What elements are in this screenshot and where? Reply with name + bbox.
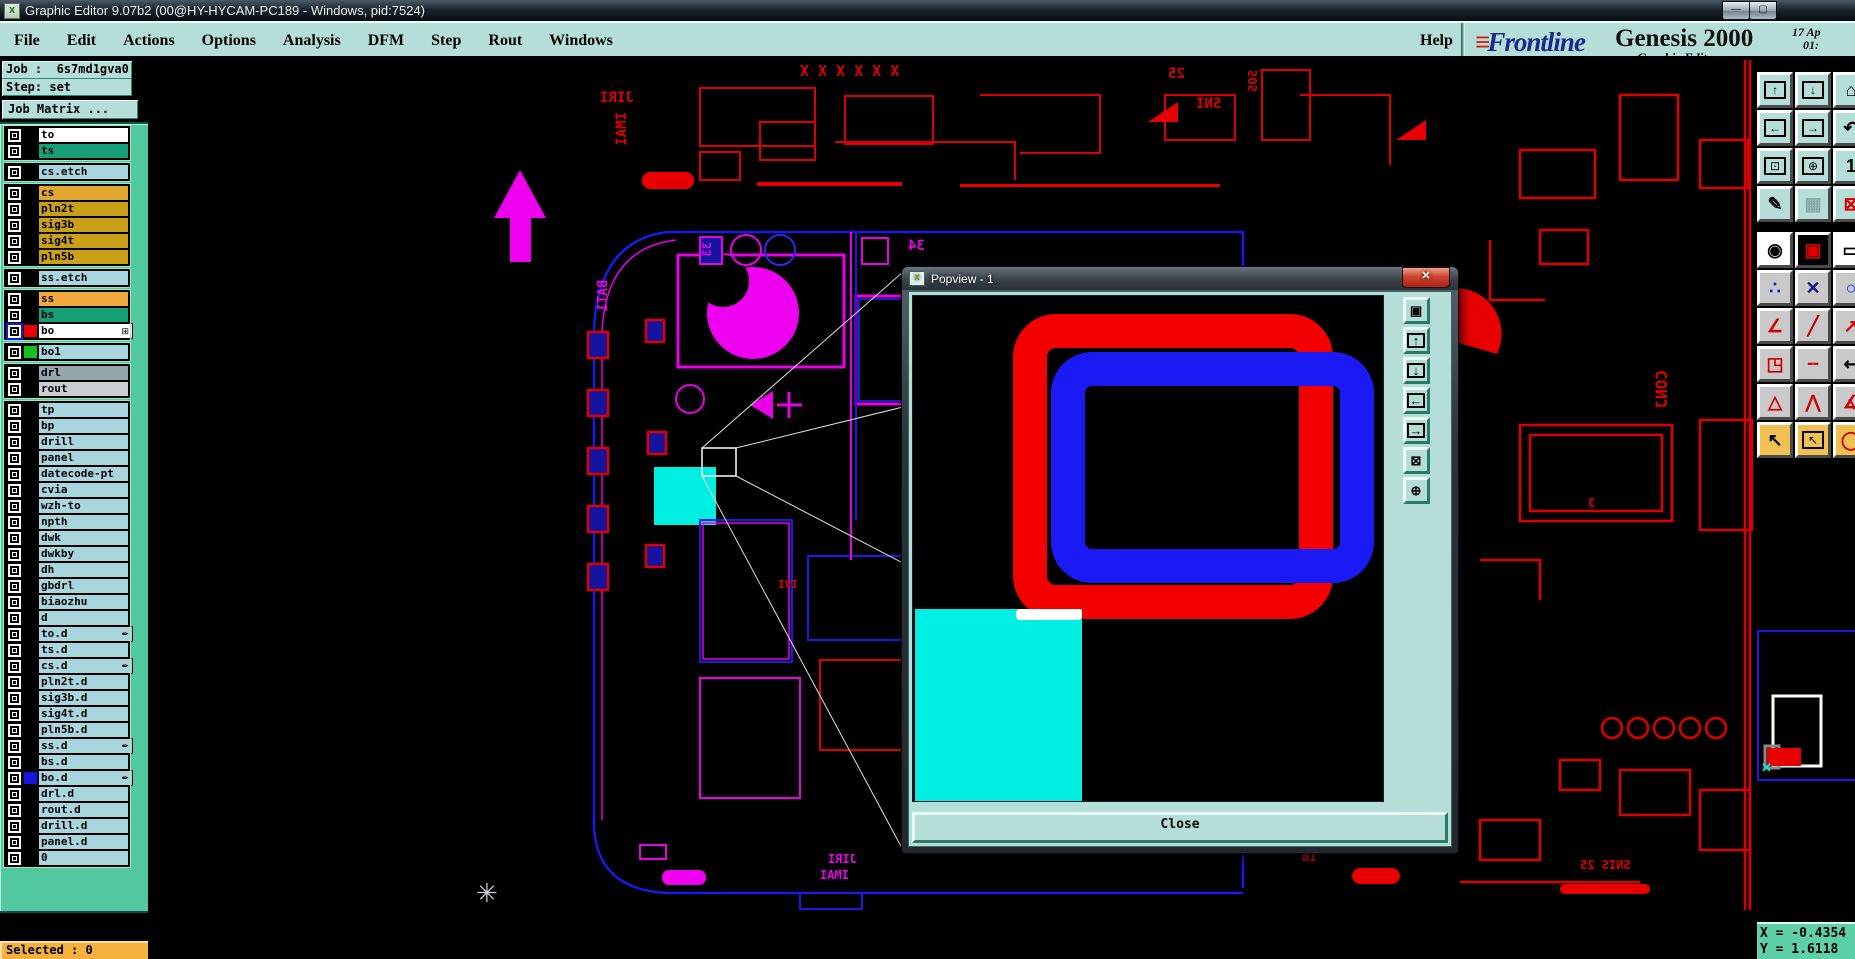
maximize-button[interactable]: ▢ [1749,1,1777,20]
undo-view-button[interactable]: ↶ [1833,110,1855,146]
layer-checkbox[interactable] [8,187,21,200]
triangle-marker-icon: △ [1768,393,1782,411]
popview-zoom-fit-button[interactable]: ⊠ [1403,447,1430,474]
silkscreen-text: BAT1 [596,280,611,311]
layer-label: ss [38,291,129,307]
layer-label: rout.d [38,802,129,818]
layer-checkbox[interactable] [8,309,21,322]
layer-label: panel.d [38,834,129,850]
layer-row-datecode-pt[interactable]: datecode-pt [5,466,129,482]
navigator-panel[interactable]: ✕ [1757,630,1855,781]
selected-status: Selected : 0 [0,941,164,959]
pan-up-button[interactable]: ↑ [1757,72,1793,108]
layer-label: cs [38,185,129,201]
dimension-button[interactable]: ↤ [1833,346,1855,382]
silkscreen-text: 3 [1588,496,1595,510]
layer-label: dwkby [38,546,129,562]
title-bar[interactable]: x Graphic Editor 9.07b2 (00@HY-HYCAM-PC1… [0,0,1855,21]
layer-checkbox[interactable] [8,564,21,577]
netlist-button[interactable]: ⊠ [1833,186,1855,222]
layer-label: sig4t.d [38,706,129,722]
menu-actions[interactable]: Actions [123,32,175,50]
layer-row-drl.d[interactable]: drl.d [5,786,129,802]
layer-row-drl[interactable]: drl [5,365,129,381]
layer-group: bo1 [4,343,130,361]
layer-label: gbdrl [38,578,129,594]
layer-color-swatch[interactable] [24,532,37,544]
layer-row-bs.d[interactable]: bs.d [5,754,129,770]
layer-color-swatch[interactable] [24,293,37,305]
net-points-button[interactable]: ∴ [1757,270,1793,306]
layer-checkbox[interactable] [8,404,21,417]
layer-group: drlrout [4,364,130,398]
layer-color-swatch[interactable] [24,436,37,448]
silkscreen-text: 25 [1168,66,1185,82]
layer-row-pln5b[interactable]: pln5b [5,249,129,265]
layer-label: pln2t [38,201,129,217]
layer-label: pln5b [38,249,129,265]
layer-group: ss.etch [4,269,130,287]
layer-color-swatch[interactable] [24,516,37,528]
layer-color-swatch[interactable] [24,756,37,768]
layer-label: ss.d [38,738,133,754]
net-points-icon: ∴ [1769,279,1780,297]
layer-row-ss.etch[interactable]: ss.etch [5,270,129,286]
layer-color-swatch[interactable] [24,251,37,263]
popview-icon: ▣ [1804,241,1821,259]
layer-marker-icon: ✒ [121,661,129,672]
angle2-button[interactable]: ∡ [1833,384,1855,420]
layer-color-swatch[interactable] [24,740,37,752]
angle-measure-button[interactable]: ∠ [1757,308,1793,344]
layer-color-swatch[interactable] [24,383,37,395]
popview-title-bar[interactable]: x Popview - 1 ✕ [902,267,1458,290]
layer-color-swatch[interactable] [24,820,37,832]
layer-color-swatch[interactable] [24,129,37,141]
layer-color-swatch[interactable] [24,166,37,178]
layer-row-sig3b[interactable]: sig3b [5,217,129,233]
pan-down-button[interactable]: ↓ [1795,72,1831,108]
popview-close-x-button[interactable]: ✕ [1402,267,1450,288]
layer-color-swatch[interactable] [24,548,37,560]
clear-highlight-icon: ✕ [1805,279,1820,297]
slope-line-button[interactable]: ╱ [1795,308,1831,344]
layer-label: bp [38,418,129,434]
layer-label: tp [38,402,129,418]
layer-label: cs.d [38,658,133,674]
layer-label: 0 [38,850,129,866]
popview-button[interactable]: ▣ [1795,232,1831,268]
select-arrow-button[interactable]: ↖ [1757,422,1793,458]
pad-copy-icon: ◳ [1766,355,1783,373]
layer-checkbox[interactable] [8,468,21,481]
popview-art [913,296,1383,801]
layer-checkbox[interactable] [8,293,21,306]
graphic-editor-window: x Graphic Editor 9.07b2 (00@HY-HYCAM-PC1… [0,0,1855,959]
layer-label: datecode-pt [38,466,129,482]
logo-speed-lines-icon: ≡ [1475,27,1487,57]
layer-checkbox[interactable] [8,484,21,497]
layer-color-swatch[interactable] [24,596,37,608]
pad-copy-button[interactable]: ◳ [1757,346,1793,382]
job-value: 6s7md1gva0 [57,62,129,76]
select-arrow-icon: ↖ [1767,431,1782,449]
layer-checkbox[interactable] [8,612,21,625]
grid-icon: ▦ [1804,195,1821,213]
popview-pan-center-icon: ⊕ [1411,482,1422,500]
layer-row-bo[interactable]: bo⊞ [5,323,129,339]
popview-pan-down-button[interactable]: ↓ [1403,357,1430,384]
silkscreen-text: SNI [1196,96,1221,112]
pan-up-icon: ↑ [1764,81,1786,99]
popview-pan-up-button[interactable]: ↑ [1403,327,1430,354]
layer-checkbox[interactable] [8,644,21,657]
layer-group: tpbpdrillpaneldatecode-ptcviawzh-tonpthd… [4,401,130,867]
popview-body: ▣↑↓←→⊠⊕ Close [908,291,1452,847]
menu-windows[interactable]: Windows [549,32,613,50]
slope-line-icon: ╱ [1808,317,1819,335]
layer-checkbox[interactable] [8,203,21,216]
dashed-line-button[interactable]: ╌ [1795,346,1831,382]
layer-row-sig3b.d[interactable]: sig3b.d [5,690,129,706]
layer-label: sig3b.d [38,690,129,706]
layer-row-bp[interactable]: bp [5,418,129,434]
layer-checkbox[interactable] [8,548,21,561]
product-name: Genesis 2000 [1615,25,1753,53]
pan-down-icon: ↓ [1802,81,1824,99]
layer-row-panel.d[interactable]: panel.d [5,834,129,850]
netlist-icon: ⊠ [1843,195,1855,213]
layer-label: bo [38,323,133,339]
dashed-line-icon: ╌ [1808,355,1819,373]
grid-button[interactable]: ▦ [1795,186,1831,222]
color-setup-button[interactable]: ✎ [1757,186,1793,222]
layer-marker-icon: ✒ [121,741,129,752]
layer-color-swatch[interactable] [24,367,37,379]
undo-view-icon: ↶ [1843,119,1855,137]
job-info-box: Job : 6s7md1gva0 Step: set [1,60,133,97]
layer-group: tots [4,126,130,160]
measure-button[interactable]: ▭ [1833,232,1855,268]
layer-row-cs[interactable]: cs [5,185,129,201]
x-coordinate: X = -0.4354 [1760,926,1855,942]
layer-checkbox[interactable] [8,420,21,433]
clear-highlight-button[interactable]: ✕ [1795,270,1831,306]
layer-row-rout[interactable]: rout [5,381,129,397]
triangle-marker-button[interactable]: △ [1757,384,1793,420]
zoom-fit-button[interactable]: ⊡ [1757,148,1793,184]
layer-color-swatch[interactable] [24,235,37,247]
layer-color-swatch[interactable] [24,660,37,672]
layer-label: drill.d [38,818,129,834]
actual-size-icon: 1 [1846,157,1855,175]
popview-pan-down-icon: ↓ [1407,363,1425,378]
layer-marker-icon: ⊞ [121,326,129,337]
layer-checkbox[interactable] [8,367,21,380]
layer-group: cs.etch [4,163,130,181]
layer-label: pln5b.d [38,722,129,738]
menu-edit[interactable]: Edit [67,32,96,50]
layer-row-0[interactable]: 0 [5,850,129,866]
layer-checkbox[interactable] [8,724,21,737]
peak-marker-button[interactable]: ⋀ [1795,384,1831,420]
layer-label: d [38,610,129,626]
layer-row-sig4t[interactable]: sig4t [5,233,129,249]
layer-color-swatch[interactable] [24,580,37,592]
layer-checkbox[interactable] [8,788,21,801]
layer-row-tp[interactable]: tp [5,402,129,418]
layer-color-swatch[interactable] [24,404,37,416]
select-round-icon: ◯ [1841,431,1855,449]
pan-right-button[interactable]: → [1795,110,1831,146]
layer-marker-icon: ✒ [121,773,129,784]
layer-color-swatch[interactable] [24,187,37,199]
silkscreen-text: CONJ [1652,370,1671,409]
layer-row-wzh-to[interactable]: wzh-to [5,498,129,514]
home-view-button[interactable]: ⌂ [1833,72,1855,108]
layer-row-ss[interactable]: ss [5,291,129,307]
line-arrow-button[interactable]: ↗ [1833,308,1855,344]
layer-checkbox[interactable] [8,346,21,359]
layer-row-ts.d[interactable]: ts.d [5,642,129,658]
layer-checkbox[interactable] [8,804,21,817]
home-view-icon: ⌂ [1846,81,1855,99]
select-frame-icon: ↖ [1802,431,1824,449]
layer-row-drill.d[interactable]: drill.d [5,818,129,834]
silkscreen-text: IMAI [820,868,849,882]
layer-list: totscs.etchcspln2tsig3bsig4tpln5bss.etch… [2,126,148,867]
layer-row-cs.d[interactable]: cs.d✒ [5,658,129,674]
layer-checkbox[interactable] [8,740,21,753]
layer-row-pln5b.d[interactable]: pln5b.d [5,722,129,738]
popview-pan-right-button[interactable]: → [1403,417,1430,444]
circle-select-icon: ○ [1846,279,1855,297]
layer-label: ss.etch [38,270,129,286]
layer-checkbox[interactable] [8,452,21,465]
main-toolbar: ↑↓⌂←→↶⊡⊕1✎▦⊠◉▣▭∴✕○∠╱↗◳╌↤△⋀∡↖↖◯ [1757,72,1855,460]
layer-color-swatch[interactable] [24,628,37,640]
layer-color-swatch[interactable] [24,203,37,215]
layer-row-dwk[interactable]: dwk [5,530,129,546]
layer-row-bo.d[interactable]: bo.d✒ [5,770,129,786]
layer-color-swatch[interactable] [24,484,37,496]
layer-panel: totscs.etchcspln2tsig3bsig4tpln5bss.etch… [0,122,150,913]
layer-row-cs.etch[interactable]: cs.etch [5,164,129,180]
compass-icon: ✳ [476,878,498,908]
menu-help[interactable]: Help [1420,23,1453,58]
layer-color-swatch[interactable] [24,420,37,432]
layer-color-swatch[interactable] [24,272,37,284]
pan-left-icon: ← [1764,119,1786,137]
circle-select-button[interactable]: ○ [1833,270,1855,306]
layer-checkbox[interactable] [8,251,21,264]
angle2-icon: ∡ [1843,393,1855,411]
silkscreen-text: 34 [908,238,925,254]
layer-checkbox[interactable] [8,596,21,609]
layer-color-swatch[interactable] [24,836,37,848]
popview-dialog: x Popview - 1 ✕ ▣↑↓←→⊠⊕ Close [901,266,1459,854]
layer-checkbox[interactable] [8,436,21,449]
layer-color-swatch[interactable] [24,145,37,157]
pan-right-icon: → [1802,119,1824,137]
silkscreen-text: SOS [1246,70,1260,92]
layer-row-cvia[interactable]: cvia [5,482,129,498]
popview-zoom-fit-icon: ⊠ [1411,452,1422,470]
select-round-button[interactable]: ◯ [1833,422,1855,458]
silkscreen-text: IMAI [614,112,630,146]
layer-row-sig4t.d[interactable]: sig4t.d [5,706,129,722]
window-title: Graphic Editor 9.07b2 (00@HY-HYCAM-PC189… [25,3,425,18]
brand-panel: ≡Frontline Genesis 2000 17 Ap 01: Graphi… [1467,23,1855,58]
zoom-fit-icon: ⊡ [1764,157,1786,175]
menu-rout[interactable]: Rout [488,32,522,50]
layer-color-swatch[interactable] [24,724,37,736]
silkscreen-text: X X X X X X [800,62,899,80]
layer-color-swatch[interactable] [24,325,37,337]
layer-color-swatch[interactable] [24,309,37,321]
layer-row-to.d[interactable]: to.d✒ [5,626,129,642]
layer-checkbox[interactable] [8,852,21,865]
peak-marker-icon: ⋀ [1806,393,1821,411]
layer-color-swatch[interactable] [24,852,37,864]
layer-checkbox[interactable] [8,129,21,142]
layer-row-pln2t[interactable]: pln2t [5,201,129,217]
menu-options[interactable]: Options [202,32,256,50]
layer-checkbox[interactable] [8,628,21,641]
svg-text:✕: ✕ [1761,760,1772,775]
menu-step[interactable]: Step [431,32,461,50]
select-frame-button[interactable]: ↖ [1795,422,1831,458]
layer-row-panel[interactable]: panel [5,450,129,466]
layer-color-swatch[interactable] [24,346,37,358]
layer-row-dh[interactable]: dh [5,562,129,578]
menu-file[interactable]: File [14,32,40,50]
sidebar: Job : 6s7md1gva0 Step: set Job Matrix ..… [0,56,148,959]
layer-label: sig3b [38,217,129,233]
pan-left-button[interactable]: ← [1757,110,1793,146]
layer-label: wzh-to [38,498,129,514]
layer-row-npth[interactable]: npth [5,514,129,530]
layer-color-swatch[interactable] [24,644,37,656]
layer-label: bo1 [38,344,129,360]
menu-divider [1461,23,1465,58]
layer-label: ts.d [38,642,129,658]
layer-row-bs[interactable]: bs [5,307,129,323]
layer-row-gbdrl[interactable]: gbdrl [5,578,129,594]
layer-label: dwk [38,530,129,546]
popview-close-button[interactable]: Close [912,812,1448,843]
layer-color-swatch[interactable] [24,468,37,480]
navigator-art: ✕ [1759,632,1855,777]
popview-detach-icon: ▣ [1410,302,1422,320]
coordinate-readout: X = -0.4354 Y = 1.6118 [1757,922,1855,959]
layer-label: cvia [38,482,129,498]
layer-checkbox[interactable] [8,516,21,529]
layer-checkbox[interactable] [8,708,21,721]
layer-checkbox[interactable] [8,580,21,593]
layer-label: to [38,127,129,143]
layer-row-d[interactable]: d [5,610,129,626]
frontline-logo: ≡Frontline [1475,27,1585,58]
layer-color-swatch[interactable] [24,708,37,720]
pan-around-icon: ⊕ [1802,157,1824,175]
brand-time: 01: [1803,38,1819,53]
toolbar-spacer [1757,224,1855,232]
zoom-area-button[interactable]: ◉ [1757,232,1793,268]
layer-checkbox[interactable] [8,660,21,673]
layer-row-to[interactable]: to [5,127,129,143]
pan-around-button[interactable]: ⊕ [1795,148,1831,184]
layer-checkbox[interactable] [8,166,21,179]
layer-checkbox[interactable] [8,219,21,232]
layer-color-swatch[interactable] [24,804,37,816]
popview-canvas[interactable] [912,295,1384,802]
step-value: set [49,80,71,94]
zoom-area-icon: ◉ [1767,241,1783,259]
layer-label: rout [38,381,129,397]
layer-color-swatch[interactable] [24,500,37,512]
menu-analysis[interactable]: Analysis [283,32,341,50]
layer-color-swatch[interactable] [24,692,37,704]
silkscreen-text: JIRI [828,852,857,866]
layer-checkbox[interactable] [8,836,21,849]
layer-color-swatch[interactable] [24,788,37,800]
layer-checkbox[interactable] [8,532,21,545]
layer-row-ts[interactable]: ts [5,143,129,159]
layer-color-swatch[interactable] [24,219,37,231]
layer-row-biaozhu[interactable]: biaozhu [5,594,129,610]
layer-checkbox[interactable] [8,756,21,769]
layer-row-rout.d[interactable]: rout.d [5,802,129,818]
layer-checkbox[interactable] [8,235,21,248]
layer-checkbox[interactable] [8,145,21,158]
menu-bar: FileEditActionsOptionsAnalysisDFMStepRou… [0,21,1855,60]
job-matrix-button[interactable]: Job Matrix ... [1,99,139,120]
popview-detach-button[interactable]: ▣ [1403,297,1430,324]
layer-checkbox[interactable] [8,692,21,705]
layer-row-drill[interactable]: drill [5,434,129,450]
popview-pan-left-button[interactable]: ← [1403,387,1430,414]
layer-checkbox[interactable] [8,772,21,785]
popview-pan-center-button[interactable]: ⊕ [1403,477,1430,504]
layer-label: sig4t [38,233,129,249]
layer-row-bo1[interactable]: bo1 [5,344,129,360]
color-setup-icon: ✎ [1767,195,1782,213]
layer-color-swatch[interactable] [24,676,37,688]
layer-color-swatch[interactable] [24,772,37,784]
layer-color-swatch[interactable] [24,564,37,576]
layer-color-swatch[interactable] [24,612,37,624]
layer-label: cs.etch [38,164,129,180]
menu-dfm[interactable]: DFM [368,32,404,50]
layer-label: pln2t.d [38,674,129,690]
dimension-icon: ↤ [1843,355,1855,373]
layer-checkbox[interactable] [8,272,21,285]
actual-size-button[interactable]: 1 [1833,148,1855,184]
popview-pan-right-icon: → [1407,423,1425,438]
layer-checkbox[interactable] [8,676,21,689]
layer-label: drl [38,365,129,381]
layer-row-dwkby[interactable]: dwkby [5,546,129,562]
layer-checkbox[interactable] [8,325,21,338]
layer-checkbox[interactable] [8,383,21,396]
layer-checkbox[interactable] [8,820,21,833]
layer-row-ss.d[interactable]: ss.d✒ [5,738,129,754]
minimize-button[interactable]: — [1722,1,1750,20]
layer-checkbox[interactable] [8,500,21,513]
layer-color-swatch[interactable] [24,452,37,464]
layer-row-pln2t.d[interactable]: pln2t.d [5,674,129,690]
